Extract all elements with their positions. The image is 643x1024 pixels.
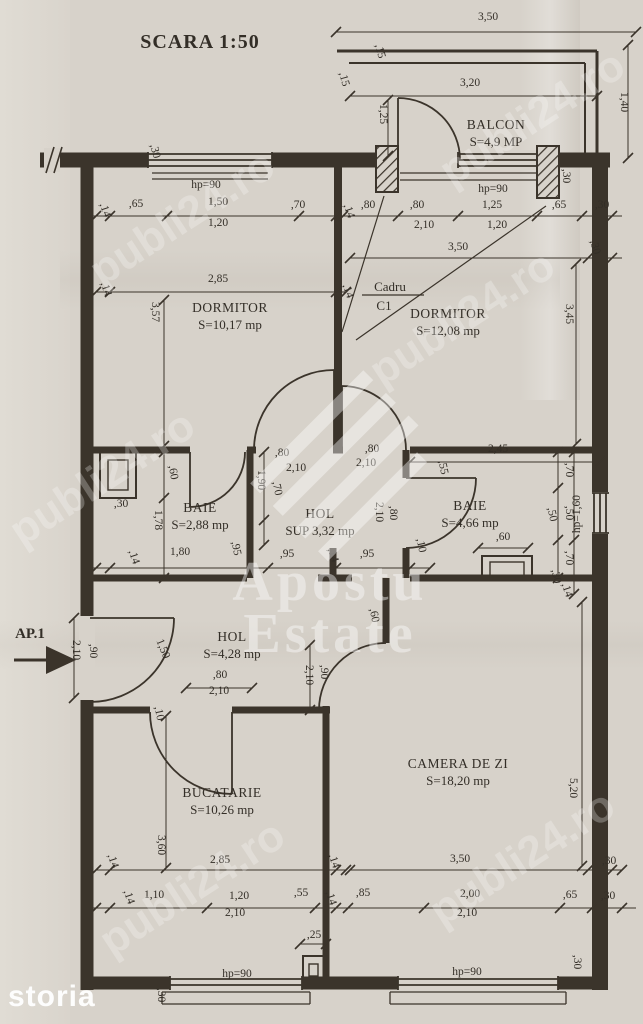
room-name: CAMERA DE ZI xyxy=(408,756,509,771)
dimension-label: 3,60 xyxy=(155,835,167,855)
dimension-label: 3,50 xyxy=(478,11,498,23)
dimension-label: ,70 xyxy=(563,463,575,478)
room-area: S=2,88 mp xyxy=(171,517,228,532)
frame-callout-line1: Cadru xyxy=(374,279,406,294)
dimension-label: ,30 xyxy=(602,855,617,867)
dimension-label: ,15 xyxy=(336,71,351,88)
dimension-label: 1,25 xyxy=(377,104,389,124)
agency-logo-stripes xyxy=(255,375,436,556)
dimension-label: ,14 xyxy=(341,202,357,220)
dimension-label: ,30 xyxy=(595,199,610,211)
dimension-label: 2,10 xyxy=(303,665,315,685)
dimension-label: 3,20 xyxy=(460,77,480,89)
column-c1-right xyxy=(537,146,559,198)
dimension-label: ,14 xyxy=(340,282,356,300)
room-label-baie-2: BAIES=4,66 mp xyxy=(441,498,498,530)
dimension-label: 1,40 xyxy=(618,92,630,112)
dimension-label: ,50 xyxy=(545,506,560,523)
door-baie-2 xyxy=(406,478,476,548)
storia-watermark: storia xyxy=(8,980,96,1013)
dimension-label: ,30 xyxy=(549,568,564,585)
dimension-label: ,30 xyxy=(155,988,167,1003)
room-label-bucatarie: BUCATARIES=10,26 mp xyxy=(182,785,261,817)
room-name: BAIE xyxy=(453,498,487,513)
dimension-label: ,90 xyxy=(318,665,330,680)
floor-plan-drawing: AP.1 SCARA 1:50 Cadru C1 BALCONS=4,9 MPD… xyxy=(0,0,643,1024)
entrance-label: AP.1 xyxy=(15,626,45,642)
dimension-label: ,30 xyxy=(601,890,616,902)
dimension-label: hp=90 xyxy=(452,966,482,978)
dimension-label: 1,78 xyxy=(152,510,164,530)
dimension-label: 2,10 xyxy=(414,219,434,231)
room-area: S=18,20 mp xyxy=(426,773,490,788)
page-title: SCARA 1:50 xyxy=(140,31,259,53)
dimension-label: ,14 xyxy=(126,548,142,566)
dimension-label: 1,20 xyxy=(229,890,249,902)
room-label-camera-de-zi: CAMERA DE ZIS=18,20 mp xyxy=(408,756,509,788)
room-area: S=4,66 mp xyxy=(441,515,498,530)
dimension-label: ,70 xyxy=(291,199,306,211)
dimension-label: ,65 xyxy=(563,889,578,901)
room-name: HOL xyxy=(217,629,246,644)
portal-watermark: publi24.ro xyxy=(361,240,564,396)
dimension-label: ,55 xyxy=(436,459,451,476)
dimension-label: ,30 xyxy=(114,498,129,510)
dimension-label: 3,57 xyxy=(149,302,161,322)
dimension-label: hp=90 xyxy=(478,183,508,195)
dimension-label: ,90 xyxy=(87,644,99,659)
door-bucatarie xyxy=(150,712,232,794)
dimension-label: ,65 xyxy=(129,198,144,210)
room-name: BUCATARIE xyxy=(182,785,261,800)
dimension-label: ,70 xyxy=(270,480,285,497)
door-dormitor-1 xyxy=(254,370,334,450)
dimension-label: ,60 xyxy=(496,531,511,543)
dimension-label: ,65 xyxy=(552,199,567,211)
room-label-baie-1: BAIES=2,88 mp xyxy=(171,500,228,532)
room-area: S=10,26 mp xyxy=(190,802,254,817)
dimension-label: ,70 xyxy=(563,551,575,566)
dimension-label: ,80 xyxy=(410,199,425,211)
dimension-label: ,60 xyxy=(166,464,180,480)
dimension-label: ,25 xyxy=(307,929,322,941)
dimension-label: ,15 xyxy=(372,43,387,60)
room-name: BAIE xyxy=(183,500,217,515)
agency-watermark-line2: Estate xyxy=(243,603,416,665)
dimension-label: ,85 xyxy=(356,887,371,899)
dimension-label: 2,10 xyxy=(209,685,229,697)
dimension-label: 1,20 xyxy=(487,219,507,231)
portal-watermark: publi24.ro xyxy=(91,810,294,966)
dimension-label: 3,45 xyxy=(563,304,575,324)
dimension-label: ,14 xyxy=(105,852,121,870)
window-baie-2 xyxy=(592,493,609,533)
dimension-label: ,80 xyxy=(361,199,376,211)
dimension-label: hp=1,60 xyxy=(571,495,583,533)
dimension-label: 1,80 xyxy=(170,546,190,558)
entrance-marker: AP.1 xyxy=(14,626,76,674)
scanned-floor-plan: { "title": "SCARA 1:50", "entrance": { "… xyxy=(0,0,643,1024)
dimension-label: 2,10 xyxy=(225,907,245,919)
dimension-label: ,30 xyxy=(571,955,583,970)
dimension-label: 2,10 xyxy=(70,640,82,660)
dimension-label: ,30 xyxy=(560,169,572,184)
dimension-label: 1,25 xyxy=(482,199,502,211)
dimension-label: hp=90 xyxy=(222,968,252,980)
dimension-label: ,55 xyxy=(294,887,309,899)
column-c1-left xyxy=(376,146,398,192)
room-name: DORMITOR xyxy=(192,300,268,315)
dimension-label: 3,50 xyxy=(448,241,468,253)
frame-callout-line2: C1 xyxy=(376,298,391,313)
room-area: S=10,17 mp xyxy=(198,317,262,332)
dimension-label: ,10 xyxy=(152,705,167,722)
room-label-dormitor-1: DORMITORS=10,17 mp xyxy=(192,300,268,332)
dimension-label: ,80 xyxy=(387,506,399,521)
dimension-label: 2,45 xyxy=(488,443,508,455)
dimension-label: 2,85 xyxy=(208,273,228,285)
door-baie-1 xyxy=(190,452,245,507)
dimension-label: 1,50 xyxy=(153,637,172,660)
dimension-label: ,80 xyxy=(213,669,228,681)
